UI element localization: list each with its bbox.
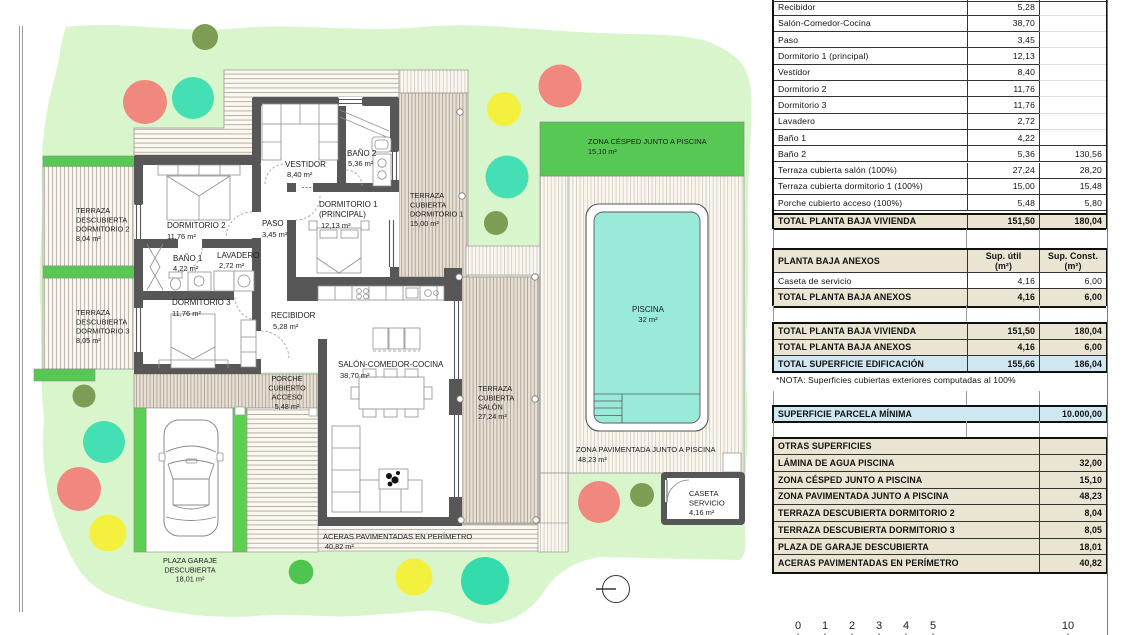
svg-text:LAVADERO: LAVADERO bbox=[217, 251, 259, 260]
svg-text:4,16 m²: 4,16 m² bbox=[689, 508, 715, 517]
svg-text:DESCUBIERTA: DESCUBIERTA bbox=[76, 317, 127, 326]
svg-text:15,10 m²: 15,10 m² bbox=[588, 147, 617, 156]
svg-text:BAÑO 2: BAÑO 2 bbox=[347, 149, 377, 158]
svg-text:12,13 m²: 12,13 m² bbox=[321, 221, 351, 230]
svg-text:10: 10 bbox=[1062, 620, 1074, 632]
svg-text:5,48 m²: 5,48 m² bbox=[275, 402, 300, 411]
svg-text:ZONA PAVIMENTADA JUNTO A PISCI: ZONA PAVIMENTADA JUNTO A PISCINA bbox=[576, 445, 715, 454]
svg-text:2,72 m²: 2,72 m² bbox=[219, 261, 245, 270]
svg-text:5,28 m²: 5,28 m² bbox=[273, 322, 299, 331]
svg-text:DORMITORIO 1: DORMITORIO 1 bbox=[410, 210, 463, 219]
svg-text:BAÑO 1: BAÑO 1 bbox=[173, 254, 203, 263]
svg-text:3,45 m²: 3,45 m² bbox=[262, 230, 288, 239]
svg-text:11,76 m²: 11,76 m² bbox=[172, 309, 202, 318]
svg-text:8,05 m²: 8,05 m² bbox=[76, 336, 101, 345]
svg-text:DORMITORIO 2: DORMITORIO 2 bbox=[167, 221, 226, 230]
svg-text:1: 1 bbox=[822, 620, 828, 632]
svg-text:ACCESO: ACCESO bbox=[272, 393, 303, 402]
svg-text:11,76 m²: 11,76 m² bbox=[167, 232, 197, 241]
svg-text:DESCUBIERTA: DESCUBIERTA bbox=[76, 215, 127, 224]
svg-text:5: 5 bbox=[930, 620, 936, 632]
svg-text:CUBIERTO: CUBIERTO bbox=[268, 383, 306, 392]
svg-text:15,00 m²: 15,00 m² bbox=[410, 219, 439, 228]
svg-text:27,24 m²: 27,24 m² bbox=[478, 412, 507, 421]
svg-text:4: 4 bbox=[903, 620, 909, 632]
svg-text:DORMITORIO 1: DORMITORIO 1 bbox=[319, 200, 378, 209]
svg-text:8,04 m²: 8,04 m² bbox=[76, 234, 101, 243]
svg-text:RECIBIDOR: RECIBIDOR bbox=[271, 311, 316, 320]
svg-text:PASO: PASO bbox=[262, 219, 284, 228]
svg-text:DORMITORIO 3: DORMITORIO 3 bbox=[172, 298, 231, 307]
svg-text:TERRAZA: TERRAZA bbox=[76, 206, 110, 215]
svg-text:DESCUBIERTA: DESCUBIERTA bbox=[164, 565, 215, 574]
svg-text:SERVICIO: SERVICIO bbox=[689, 499, 725, 508]
svg-text:0: 0 bbox=[795, 620, 801, 632]
svg-text:ZONA CÉSPED JUNTO A PISCINA: ZONA CÉSPED JUNTO A PISCINA bbox=[588, 137, 707, 146]
svg-text:PLAZA GARAJE: PLAZA GARAJE bbox=[163, 556, 217, 565]
svg-text:PISCINA: PISCINA bbox=[632, 305, 665, 314]
svg-text:(PRINCIPAL): (PRINCIPAL) bbox=[319, 210, 366, 219]
svg-text:ACERAS PAVIMENTADAS EN PERÍMET: ACERAS PAVIMENTADAS EN PERÍMETRO bbox=[323, 532, 472, 541]
svg-text:SALÓN-COMEDOR-COCINA: SALÓN-COMEDOR-COCINA bbox=[338, 360, 444, 369]
svg-text:TERRAZA: TERRAZA bbox=[76, 308, 110, 317]
svg-text:32 m²: 32 m² bbox=[638, 315, 658, 324]
svg-text:DORMITORIO 3: DORMITORIO 3 bbox=[76, 327, 129, 336]
svg-text:48,23 m²: 48,23 m² bbox=[578, 455, 607, 464]
svg-text:PORCHE: PORCHE bbox=[271, 374, 302, 383]
svg-text:CASETA: CASETA bbox=[689, 489, 718, 498]
svg-text:SALÓN: SALÓN bbox=[478, 403, 503, 412]
svg-text:CUBIERTA: CUBIERTA bbox=[478, 393, 514, 402]
svg-text:TERRAZA: TERRAZA bbox=[410, 191, 444, 200]
svg-text:8,40 m²: 8,40 m² bbox=[287, 170, 313, 179]
svg-text:CUBIERTA: CUBIERTA bbox=[410, 200, 446, 209]
svg-text:4,22 m²: 4,22 m² bbox=[173, 264, 199, 273]
svg-text:38,70 m²: 38,70 m² bbox=[340, 371, 370, 380]
svg-text:TERRAZA: TERRAZA bbox=[478, 384, 512, 393]
svg-text:2: 2 bbox=[849, 620, 855, 632]
svg-text:18,01 m²: 18,01 m² bbox=[176, 575, 205, 584]
svg-text:3: 3 bbox=[876, 620, 882, 632]
svg-text:5,36 m²: 5,36 m² bbox=[348, 159, 374, 168]
svg-text:VESTIDOR: VESTIDOR bbox=[285, 160, 326, 169]
svg-text:DORMITORIO 2: DORMITORIO 2 bbox=[76, 225, 129, 234]
svg-text:40,82 m²: 40,82 m² bbox=[325, 542, 354, 551]
